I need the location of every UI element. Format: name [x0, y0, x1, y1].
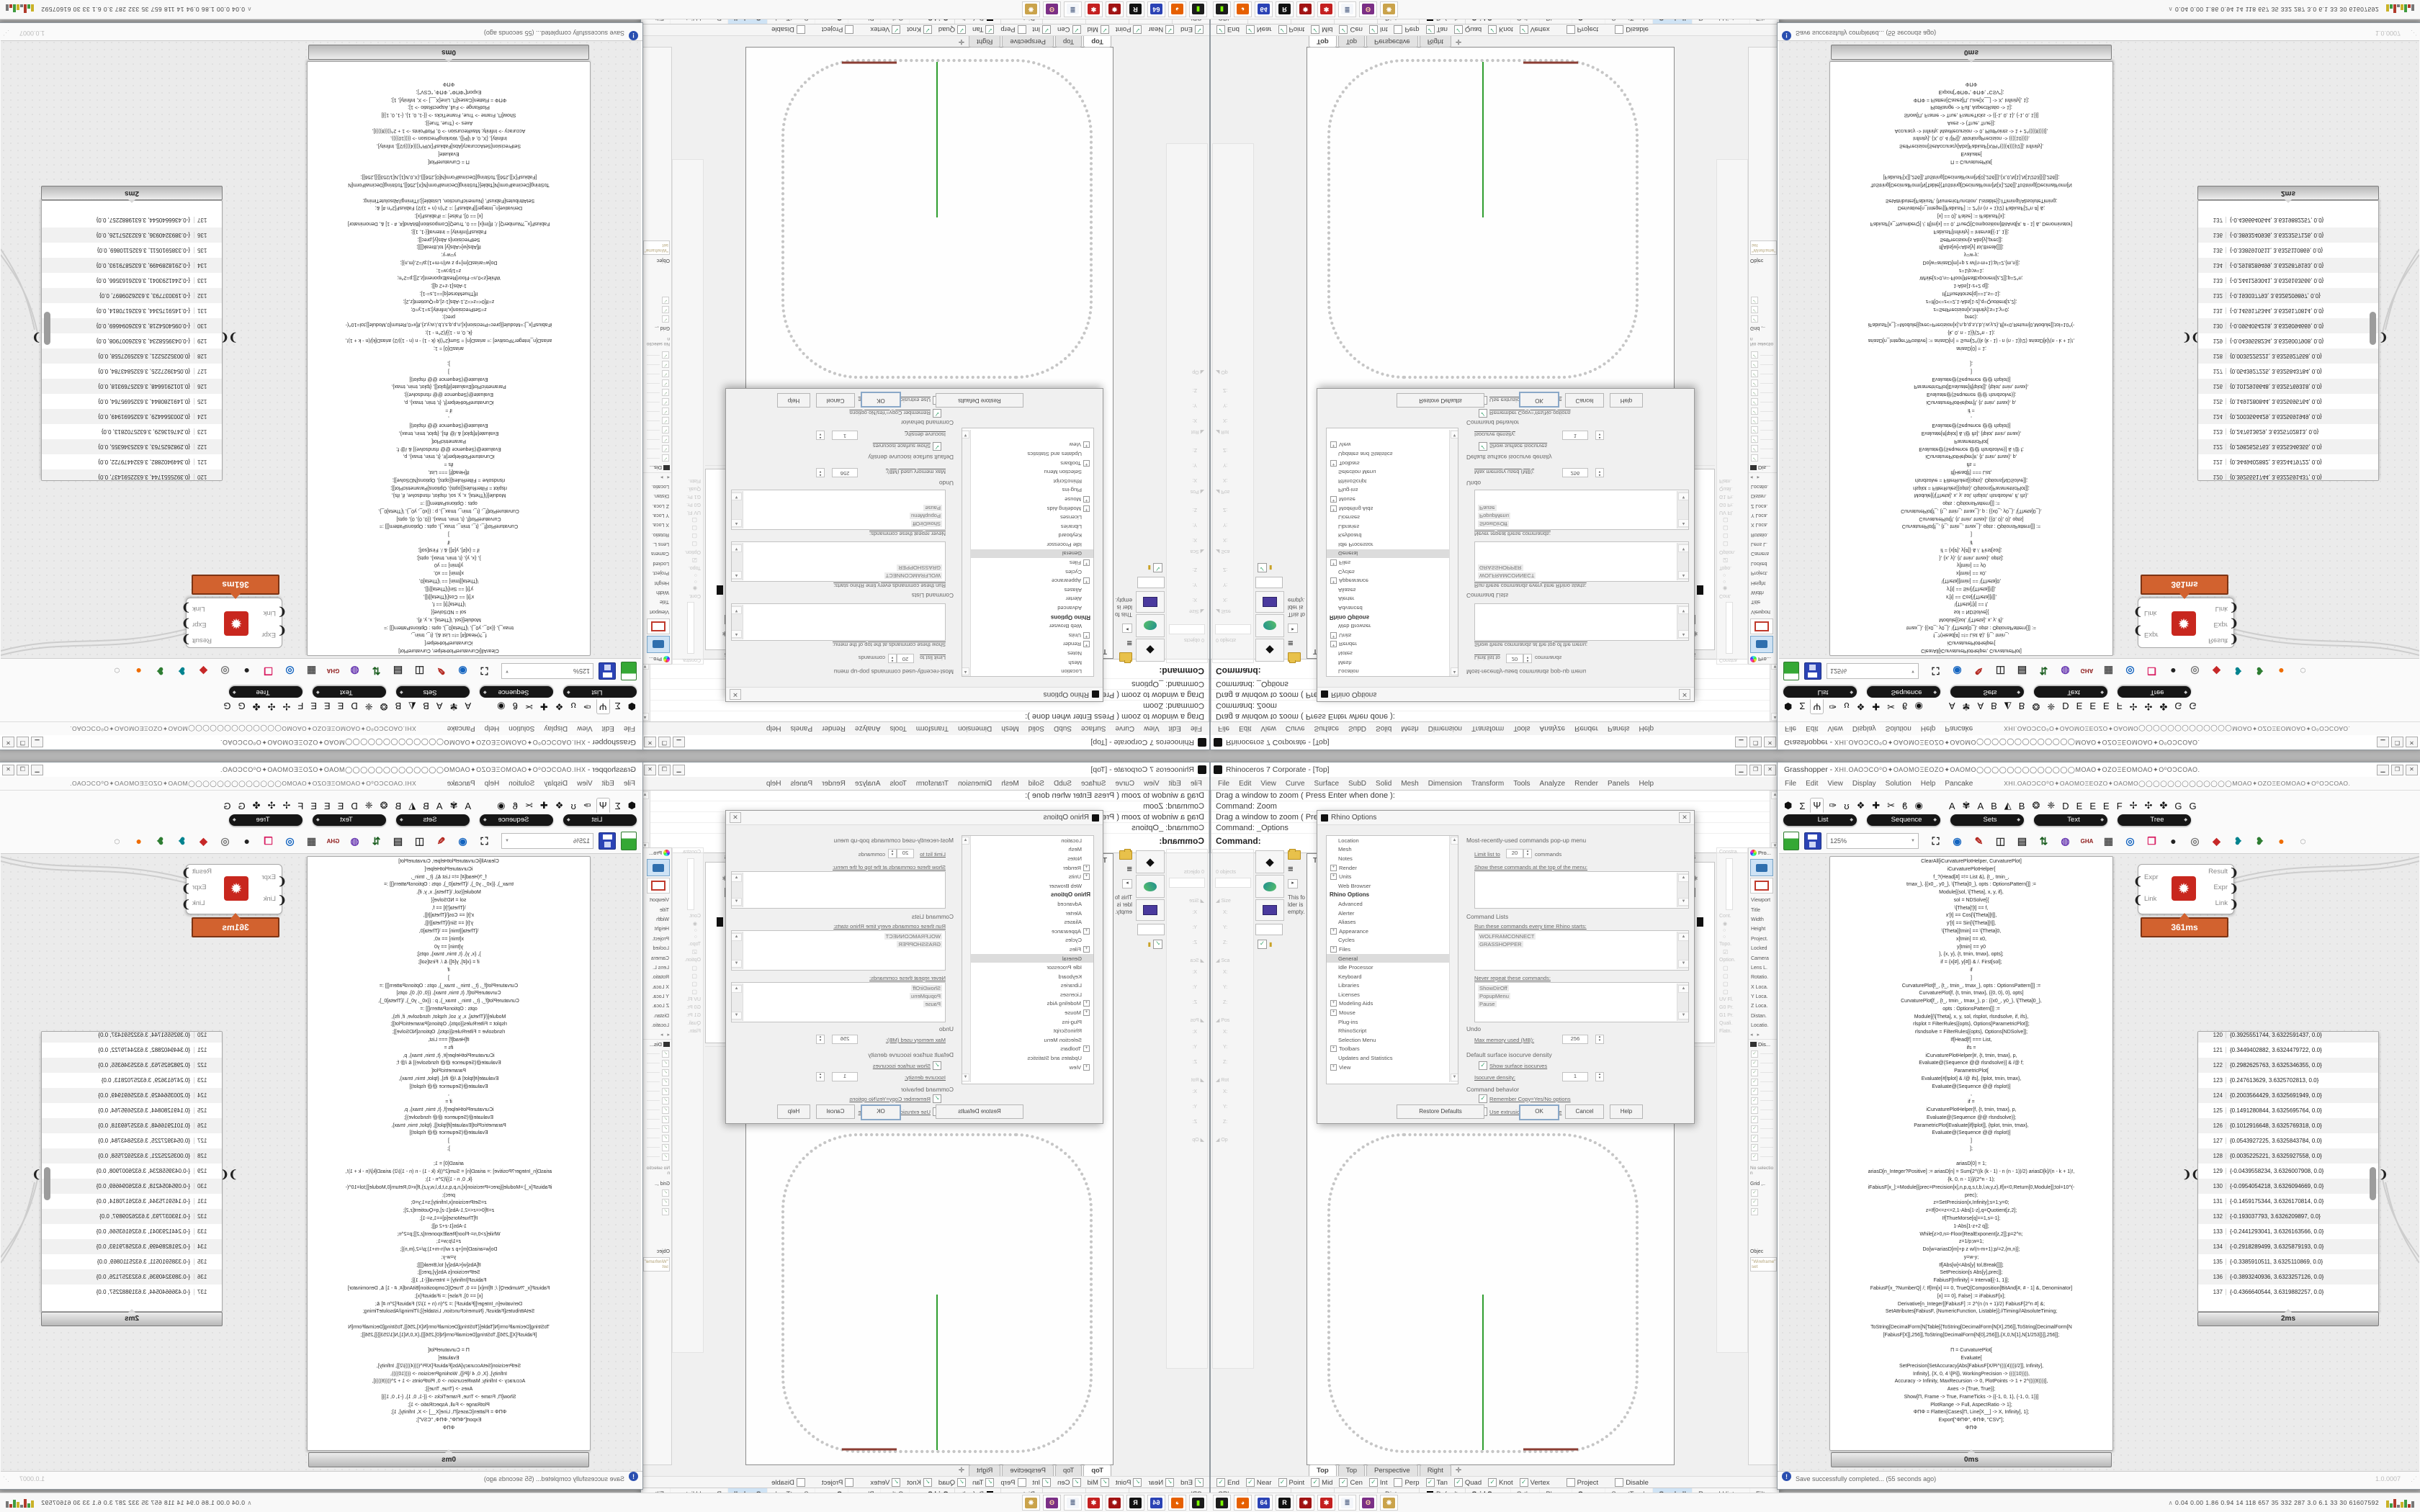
- display-check-row[interactable]: ✓: [642, 1058, 671, 1068]
- grid-check-row[interactable]: ✓: [1749, 1188, 1778, 1197]
- gh-subcategory-pills[interactable]: ListSequenceSetsTextTree: [1783, 686, 2191, 698]
- gh-toolbar-icon-6[interactable]: ◍: [347, 834, 362, 849]
- list-item[interactable]: 122{0.2982625763, 3.6325346355, 0.0}: [2198, 1058, 2378, 1073]
- menu-tools[interactable]: Tools: [889, 725, 906, 733]
- gh-toolbar-icon-10[interactable]: ❒: [2144, 664, 2159, 679]
- display-check-row[interactable]: ✓: [642, 388, 671, 397]
- button-cancel[interactable]: Cancel: [816, 393, 855, 408]
- prop-row-viewport[interactable]: Viewport: [1749, 896, 1778, 905]
- osnap-quad[interactable]: ✓Quad: [938, 1478, 966, 1487]
- never-item[interactable]: Pause: [923, 1001, 942, 1007]
- sidebar-input[interactable]: [1255, 577, 1283, 588]
- tree-item-aliases[interactable]: Aliases: [962, 917, 1093, 927]
- list-item[interactable]: 128{0.0035225221, 3.6325927558, 0.0}: [2198, 1148, 2378, 1164]
- list-item[interactable]: 134{-0.2918289499, 3.6325879193, 0.0}: [2198, 258, 2378, 273]
- gh-tab-20[interactable]: E: [322, 799, 333, 813]
- gh-tab-26[interactable]: G: [2172, 799, 2184, 813]
- gh-toolbar-icon-11[interactable]: ●: [239, 664, 254, 679]
- taskbar-console-icon[interactable]: ▮: [1213, 1495, 1231, 1511]
- gh-tab-7[interactable]: ✂: [1885, 699, 1897, 714]
- resize-grip[interactable]: ⋰: [2411, 26, 2419, 40]
- tree-item-mesh[interactable]: Mesh: [962, 845, 1093, 855]
- gh-toolbar-icon-4[interactable]: ▤: [390, 834, 405, 849]
- gh-tab-17[interactable]: ❈: [2045, 699, 2057, 714]
- output-grip2[interactable]: ❩: [181, 617, 191, 630]
- gh-toolbar-icon-7[interactable]: GHA: [2079, 834, 2094, 849]
- window-button[interactable]: ✕: [2, 737, 14, 748]
- prop-row-camera[interactable]: Camera: [642, 953, 671, 963]
- tree-item-units[interactable]: +Units: [1327, 631, 1458, 640]
- menu-analyze[interactable]: Analyze: [1540, 780, 1566, 788]
- gh-toolbar-icon-10[interactable]: ❒: [261, 664, 276, 679]
- layer-swatch[interactable]: [1697, 917, 1703, 927]
- sidebar-input[interactable]: [1137, 577, 1165, 588]
- osnap-end[interactable]: ✓End: [1216, 25, 1240, 34]
- gh-tab-25[interactable]: ✤: [251, 798, 263, 813]
- list-item[interactable]: 130{-0.0954054218, 3.6326094669, 0.0}: [2198, 318, 2378, 333]
- gh-toolbar-icon-0[interactable]: ⛶: [477, 834, 492, 849]
- gh-pill-sets[interactable]: Sets: [1950, 686, 2024, 698]
- iso-density-input[interactable]: 1: [1562, 1072, 1588, 1081]
- gh-toolbar-icon-7[interactable]: GHA: [326, 664, 341, 679]
- gh-tab-10[interactable]: A: [1947, 699, 1958, 713]
- gh-tab-2[interactable]: Ψ: [1810, 699, 1824, 714]
- tree-item-rhinoscript[interactable]: RhinoScript: [1327, 1026, 1458, 1035]
- tree-item-web-browser[interactable]: Web Browser: [1327, 621, 1458, 631]
- menu-edit[interactable]: Edit: [1239, 780, 1251, 788]
- viewport-tab-right-3[interactable]: Right: [969, 1464, 1000, 1476]
- component-output-expr[interactable]: Expr: [192, 883, 207, 891]
- prop-row-locatio[interactable]: Locatio.: [642, 1021, 671, 1030]
- prop-row-camera[interactable]: Camera: [1749, 549, 1778, 558]
- tree-item-render[interactable]: +Render: [1327, 640, 1458, 649]
- prop-row-title[interactable]: Title: [642, 905, 671, 914]
- gh-toolbar-icon-11[interactable]: ●: [2166, 664, 2181, 679]
- never-item[interactable]: ShowDirOff: [911, 985, 942, 991]
- gh-tab-4[interactable]: ʊ: [1842, 799, 1851, 813]
- taskbar-rhino-icon[interactable]: R: [1276, 1495, 1294, 1511]
- menu-dimension[interactable]: Dimension: [958, 780, 992, 788]
- run-item[interactable]: WOLFRAMCONNECT: [884, 572, 942, 579]
- run-item[interactable]: GRASSHOPPER: [897, 564, 942, 571]
- tree-item-cycles[interactable]: Cycles: [962, 567, 1093, 577]
- gh-tab-12[interactable]: A: [434, 799, 445, 813]
- gh-menu-display[interactable]: Display: [544, 780, 568, 788]
- tree-item-mesh[interactable]: Mesh: [1327, 845, 1458, 855]
- osnap-int[interactable]: ✓Int: [1033, 25, 1052, 34]
- menu-transform[interactable]: Transform: [916, 725, 949, 733]
- training-icon[interactable]: ◆: [1255, 639, 1284, 662]
- display-check-row[interactable]: ✓: [1749, 407, 1778, 416]
- gh-tab-23[interactable]: ✢: [2128, 699, 2140, 714]
- gh-tab-18[interactable]: D: [2060, 699, 2071, 713]
- window-button[interactable]: ✕: [644, 737, 656, 748]
- gh-tab-6[interactable]: ✚: [538, 798, 550, 813]
- gh-menu-help[interactable]: Help: [1921, 780, 1936, 788]
- gh-toolbar-icon-14[interactable]: ❥: [174, 664, 189, 679]
- gh-tab-13[interactable]: B: [421, 699, 431, 713]
- viewport-tab-top-1[interactable]: Top: [1055, 36, 1082, 48]
- input-grip[interactable]: ❨: [277, 624, 287, 637]
- window-button[interactable]: ❐: [2391, 765, 2403, 775]
- taskbar-palette-icon[interactable]: ❋: [1022, 1, 1040, 17]
- prop-row-title[interactable]: Title: [642, 597, 671, 606]
- prop-row-yloca[interactable]: Y Loca.: [642, 992, 671, 1002]
- prop-row-locked[interactable]: Locked: [1749, 944, 1778, 953]
- viewport-tab-top-1[interactable]: Top: [1055, 1464, 1082, 1476]
- mem-stepper[interactable]: ▴▾: [1595, 468, 1604, 477]
- limit-stepper[interactable]: ▴▾: [1523, 654, 1532, 663]
- list-item[interactable]: 133{-0.2441293041, 3.6326163566, 0.0}: [42, 1224, 222, 1239]
- gh-tab-6[interactable]: ✚: [1870, 798, 1882, 813]
- component-input-expr[interactable]: Expr: [261, 631, 276, 639]
- display-check-row[interactable]: ✓: [1749, 397, 1778, 407]
- gh-toolbar-icon-12[interactable]: ◎: [2187, 664, 2202, 679]
- list-scroll-thumb[interactable]: [2370, 1167, 2376, 1200]
- list-scroll-thumb[interactable]: [44, 1167, 50, 1200]
- list-item[interactable]: 131{-0.1459175344, 3.6326170814, 0.0}: [2198, 1194, 2378, 1209]
- gh-toolbar-icon-17[interactable]: ◌: [109, 834, 125, 849]
- gh-tab-14[interactable]: ◭: [406, 699, 418, 714]
- gh-toolbar-icon-3[interactable]: ◫: [412, 834, 427, 849]
- taskbar-floppy64-icon[interactable]: 64: [1255, 1495, 1273, 1511]
- osnap-tan[interactable]: ✓Tan: [1426, 1478, 1448, 1487]
- prop-row-lensl[interactable]: Lens L.: [642, 963, 671, 973]
- taskbar-red-gear-icon[interactable]: ✱: [1085, 1495, 1103, 1511]
- gh-menu-solution[interactable]: Solution: [1886, 725, 1912, 733]
- gh-tab-26[interactable]: G: [236, 799, 248, 813]
- osnap-int[interactable]: ✓Int: [1369, 25, 1388, 34]
- display-check-row[interactable]: ✓: [642, 407, 671, 416]
- display-check-row[interactable]: ✓: [642, 1152, 671, 1161]
- rhino-titlebar[interactable]: Rhinoceros 7 Corporate - [Top] ▁❐✕: [1211, 734, 1779, 750]
- taskbar-red-badge-icon[interactable]: ✹: [1296, 1, 1314, 17]
- tree-item-licenses[interactable]: Licenses: [1327, 990, 1458, 999]
- tree-item-rhino-options[interactable]: Rhino Options: [1327, 891, 1458, 900]
- display-check-row[interactable]: ✓: [642, 379, 671, 388]
- list-item[interactable]: 121{0.3449402882, 3.6324479722, 0.0}: [2198, 454, 2378, 469]
- prop-row-height[interactable]: Height: [642, 924, 671, 934]
- list-item[interactable]: 125{0.1491280844, 3.6325695764, 0.0}: [2198, 1103, 2378, 1118]
- tree-item-selection-menu[interactable]: Selection Menu: [962, 1035, 1093, 1045]
- gh-tab-24[interactable]: ✣: [266, 699, 278, 714]
- taskbar-firefox-icon[interactable]: ◕: [1168, 1, 1186, 17]
- gh-tab-21[interactable]: E: [308, 799, 319, 813]
- expand-icon[interactable]: +: [1083, 1000, 1090, 1007]
- prop-row-distan[interactable]: Distan.: [1749, 1012, 1778, 1021]
- rhino-titlebar[interactable]: Rhinoceros 7 Corporate - [Top] ▁❐✕: [641, 762, 1209, 778]
- expand-icon[interactable]: +: [1083, 946, 1090, 953]
- limit-stepper[interactable]: ▴▾: [888, 849, 897, 858]
- tree-item-plug-ins[interactable]: Plug-ins: [1327, 486, 1458, 495]
- hamburger-icon[interactable]: ≡: [1113, 639, 1132, 648]
- tree-item-aliases[interactable]: Aliases: [1327, 917, 1458, 927]
- gh-pill-list[interactable]: List: [1783, 686, 1857, 698]
- gh-pill-sequence[interactable]: Sequence: [1867, 686, 1940, 698]
- gh-tab-2[interactable]: Ψ: [1810, 798, 1824, 813]
- camera-button[interactable]: [647, 859, 670, 876]
- display-check-row[interactable]: ✓: [1749, 435, 1778, 444]
- gh-tab-11[interactable]: ✾: [1960, 699, 1973, 714]
- code-panel[interactable]: ClearAll[iCurvaturePlotHelper, Curvature…: [1829, 856, 2113, 1451]
- open-file-icon[interactable]: [1783, 832, 1799, 850]
- input-grip2[interactable]: ❨: [2133, 606, 2143, 618]
- menu-surface[interactable]: Surface: [1081, 725, 1106, 733]
- taskbar-notepad-icon[interactable]: ≣: [1338, 1, 1356, 17]
- gh-tab-0[interactable]: ⬢: [1782, 699, 1794, 714]
- taskbar-red-gear-icon[interactable]: ✱: [1317, 1, 1335, 17]
- expand-box[interactable]: ▸: [1122, 879, 1132, 888]
- gh-tab-24[interactable]: ✣: [2143, 798, 2155, 813]
- gh-pill-tree[interactable]: Tree: [229, 814, 302, 826]
- viewport-tabs[interactable]: TopTopPerspectiveRight✛: [956, 1464, 1111, 1476]
- expand-icon[interactable]: +: [1330, 946, 1337, 953]
- display-check-row[interactable]: ✓: [642, 1077, 671, 1086]
- blob-icon[interactable]: [1136, 614, 1165, 637]
- expand-icon[interactable]: +: [1330, 873, 1337, 880]
- osnap-vertex[interactable]: ✓Vertex: [870, 1478, 900, 1487]
- tree-item-cycles[interactable]: Cycles: [1327, 567, 1458, 577]
- resize-grip[interactable]: ⋰: [1, 26, 9, 40]
- options-tree[interactable]: LocationMeshNotes+Render+UnitsWeb Browse…: [1326, 428, 1458, 677]
- prop-row-title[interactable]: Title: [1749, 905, 1778, 914]
- expand-icon[interactable]: +: [1330, 928, 1337, 935]
- expand-icon[interactable]: +: [1330, 496, 1337, 503]
- gh-toolbar-icon-13[interactable]: ◆: [196, 664, 211, 679]
- options-tree[interactable]: LocationMeshNotes+Render+UnitsWeb Browse…: [1326, 835, 1458, 1084]
- window-button[interactable]: ▁: [1735, 765, 1747, 775]
- gh-tab-8[interactable]: ϐ: [510, 799, 519, 813]
- gh-toolbar-icon-4[interactable]: ▤: [2015, 664, 2030, 679]
- tree-item-updates-and-statistics[interactable]: Updates and Statistics: [1327, 1053, 1458, 1063]
- iso-density-stepper[interactable]: ▴▾: [816, 431, 825, 440]
- osnap-knot[interactable]: ✓Knot: [1488, 25, 1513, 34]
- gh-subcategory-pills[interactable]: ListSequenceSetsTextTree: [1783, 814, 2191, 826]
- new-viewport-icon[interactable]: ✛: [1453, 36, 1464, 47]
- target-button[interactable]: [647, 878, 670, 894]
- menu-transform[interactable]: Transform: [1471, 780, 1504, 788]
- gh-toolbar-icon-14[interactable]: ❥: [2231, 664, 2246, 679]
- hright-icon[interactable]: ▸: [660, 474, 663, 480]
- gh-toolbar-icon-13[interactable]: ◆: [2209, 834, 2224, 849]
- gh-toolbar-icon-8[interactable]: ▦: [304, 664, 319, 679]
- taskbar-notepad-icon[interactable]: ≣: [1064, 1495, 1082, 1511]
- gh-tab-4[interactable]: ʊ: [568, 699, 578, 713]
- gh-tab-2[interactable]: Ψ: [596, 699, 610, 714]
- gh-tab-15[interactable]: B: [2017, 699, 2027, 713]
- list-item[interactable]: 130{-0.0954054218, 3.6326094669, 0.0}: [2198, 1179, 2378, 1194]
- tree-item-appearance[interactable]: +Appearance: [962, 927, 1093, 936]
- osnap-point[interactable]: ✓Point: [1116, 25, 1142, 34]
- tree-item-keyboard[interactable]: Keyboard: [1327, 972, 1458, 981]
- taskbar-console-icon[interactable]: ▮: [1213, 1, 1231, 17]
- viewport-tab-perspective-2[interactable]: Perspective: [1002, 1464, 1054, 1476]
- tree-item-cycles[interactable]: Cycles: [1327, 936, 1458, 945]
- gh-toolbar-icon-9[interactable]: ◎: [2123, 664, 2138, 679]
- tree-item-alerter[interactable]: Alerter: [1327, 595, 1458, 604]
- gh-toolbar-icon-5[interactable]: ⇅: [2036, 834, 2051, 849]
- list-item[interactable]: 133{-0.2441293041, 3.6326163566, 0.0}: [42, 273, 222, 288]
- gh-subcategory-pills[interactable]: ListSequenceSetsTextTree: [229, 686, 637, 698]
- osnap-cen[interactable]: ✓Cen: [1339, 1478, 1362, 1487]
- gh-menu-help[interactable]: Help: [485, 725, 500, 733]
- hamburger-icon[interactable]: ≡: [1288, 864, 1307, 873]
- gh-toolbar-icon-6[interactable]: ◍: [2058, 664, 2073, 679]
- run-item[interactable]: GRASSHOPPER: [1478, 941, 1523, 948]
- viewport-tab-right-3[interactable]: Right: [1420, 1464, 1451, 1476]
- tree-item-rhino-options[interactable]: Rhino Options: [962, 613, 1093, 622]
- component-output-expr[interactable]: Expr: [2213, 883, 2228, 891]
- mathematica-spikey-icon[interactable]: ✹: [224, 876, 248, 901]
- output-grip2[interactable]: ❩: [2229, 882, 2238, 895]
- gh-tab-20[interactable]: E: [2087, 799, 2098, 813]
- prop-row-distan[interactable]: Distan.: [642, 491, 671, 500]
- gh-tab-21[interactable]: E: [2101, 799, 2112, 813]
- grid-check-row[interactable]: ✓: [642, 315, 671, 324]
- taskbar-purple-app-icon[interactable]: ʘ: [1359, 1495, 1377, 1511]
- tree-item-general[interactable]: General: [1327, 954, 1458, 963]
- gh-tab-26[interactable]: G: [236, 699, 248, 713]
- menu-help[interactable]: Help: [766, 780, 781, 788]
- gh-tab-10[interactable]: A: [462, 799, 473, 813]
- gh-pill-sets[interactable]: Sets: [396, 686, 470, 698]
- list-item[interactable]: 133{-0.2441293041, 3.6326163566, 0.0}: [2198, 1224, 2378, 1239]
- menu-render[interactable]: Render: [1574, 780, 1598, 788]
- display-check-row[interactable]: ✓: [642, 416, 671, 426]
- hright-icon[interactable]: ▸: [1757, 474, 1760, 480]
- iso-density-input[interactable]: 1: [832, 431, 858, 440]
- wireframe-set-box[interactable]: "Wireframe" set: [1750, 240, 1777, 255]
- osnap-cen[interactable]: ✓Cen: [1057, 25, 1080, 34]
- list-panel[interactable]: 120{0.3925551744, 3.6322591437, 0.0}121{…: [2197, 1031, 2379, 1312]
- options-dialog-titlebar[interactable]: Rhino Options ✕: [726, 687, 1103, 701]
- menu-view[interactable]: View: [1144, 725, 1160, 733]
- list-item[interactable]: 137{-0.4366640544, 3.6319882257, 0.0}: [42, 1284, 222, 1300]
- list-item[interactable]: 122{0.2982625763, 3.6325346355, 0.0}: [2198, 439, 2378, 454]
- prop-row-project[interactable]: Project.: [1749, 568, 1778, 577]
- grid-check-row[interactable]: ✓: [642, 296, 671, 305]
- gh-tab-9[interactable]: ◉: [1913, 798, 1925, 813]
- gh-toolbar-icon-9[interactable]: ◎: [282, 834, 297, 849]
- taskbar-notepad-icon[interactable]: ≣: [1064, 1, 1082, 17]
- gh-menu-file[interactable]: File: [1785, 725, 1796, 733]
- display-check-row[interactable]: ✓: [1749, 1124, 1778, 1133]
- gh-canvas[interactable]: ClearAll[iCurvaturePlotHelper, Curvature…: [1779, 853, 2419, 1472]
- osnap-quad[interactable]: ✓Quad: [938, 25, 966, 34]
- gh-pill-text[interactable]: Text: [313, 686, 386, 698]
- window-button[interactable]: ❐: [1749, 765, 1762, 775]
- hamburger-icon[interactable]: ≡: [1288, 639, 1307, 648]
- display-mode-icon[interactable]: [1255, 591, 1284, 613]
- tree-item-plug-ins[interactable]: Plug-ins: [962, 486, 1093, 495]
- tree-item-notes[interactable]: Notes: [1327, 854, 1458, 863]
- osnap-end[interactable]: ✓End: [1180, 25, 1204, 34]
- list-item[interactable]: 124{0.2003564429, 3.6325691949, 0.0}: [42, 1088, 222, 1103]
- list-item[interactable]: 124{0.2003564429, 3.6325691949, 0.0}: [42, 409, 222, 424]
- osnap-near[interactable]: ✓Near: [1246, 1478, 1272, 1487]
- run-listbox[interactable]: WOLFRAMCONNECTGRASSHOPPER▲▼: [1474, 930, 1689, 971]
- gh-tab-2[interactable]: Ψ: [596, 798, 610, 813]
- component-input-link[interactable]: Link: [2144, 895, 2156, 903]
- list-item[interactable]: 125{0.1491280844, 3.6325695764, 0.0}: [42, 394, 222, 409]
- save-file-icon[interactable]: [1804, 662, 1821, 680]
- iso-density-stepper[interactable]: ▴▾: [816, 1072, 825, 1081]
- osnap-mid[interactable]: ✓Mid: [1311, 1478, 1332, 1487]
- menu-edit[interactable]: Edit: [1169, 725, 1181, 733]
- mem-input[interactable]: 256: [832, 468, 858, 477]
- mru-listbox[interactable]: ▲▼: [731, 871, 946, 909]
- osnap-cen[interactable]: ✓Cen: [1057, 1478, 1080, 1487]
- menu-render[interactable]: Render: [1574, 725, 1598, 733]
- never-listbox[interactable]: ShowDirOffPopupMenuPause▲▼: [731, 490, 946, 530]
- gh-tab-22[interactable]: F: [2115, 799, 2125, 813]
- gh-menu-view[interactable]: View: [1827, 725, 1843, 733]
- osnap-mid[interactable]: ✓Mid: [1311, 25, 1332, 34]
- new-viewport-icon[interactable]: ✛: [956, 1465, 967, 1476]
- never-item[interactable]: ShowDirOff: [1478, 521, 1509, 527]
- gh-toolbar-icon-13[interactable]: ◆: [2209, 664, 2224, 679]
- dialog-close-icon[interactable]: ✕: [730, 689, 741, 700]
- sidebar-input[interactable]: [1137, 924, 1165, 935]
- gh-toolbar-icon-10[interactable]: ❒: [261, 834, 276, 849]
- tree-item-idle-processor[interactable]: Idle Processor: [1327, 540, 1458, 549]
- gh-toolbar-icon-17[interactable]: ◌: [2295, 664, 2311, 679]
- prop-row-camera[interactable]: Camera: [1749, 953, 1778, 963]
- prop-row-locked[interactable]: Locked: [642, 944, 671, 953]
- open-file-icon[interactable]: [621, 832, 637, 850]
- tree-item-files[interactable]: +Files: [1327, 945, 1458, 954]
- gh-tab-14[interactable]: ◭: [2002, 699, 2014, 714]
- tree-item-units[interactable]: +Units: [962, 872, 1093, 881]
- sidebar-check[interactable]: ✓▮: [1134, 563, 1165, 572]
- expand-icon[interactable]: +: [1330, 1045, 1337, 1052]
- prop-row-lensl[interactable]: Lens L.: [642, 539, 671, 549]
- taskbar-console-icon[interactable]: ▮: [1189, 1, 1207, 17]
- tree-item-advanced[interactable]: Advanced: [962, 899, 1093, 909]
- menu-solid[interactable]: Solid: [1376, 780, 1391, 788]
- window-button[interactable]: ✕: [2406, 765, 2418, 775]
- display-check-row[interactable]: ✓: [1749, 416, 1778, 426]
- gh-tab-27[interactable]: G: [221, 699, 233, 713]
- gh-tab-7[interactable]: ✂: [1885, 798, 1897, 813]
- output-grip[interactable]: ❩: [2229, 866, 2238, 879]
- prop-row-zloca[interactable]: Z Loca.: [642, 1002, 671, 1011]
- button-help[interactable]: Help: [777, 1104, 810, 1119]
- iso-check[interactable]: ✓Show surface isocurves: [873, 1061, 941, 1070]
- gh-toolbar-icon-8[interactable]: ▦: [2101, 664, 2116, 679]
- gh-toolbar-icon-11[interactable]: ●: [2166, 834, 2181, 849]
- expand-icon[interactable]: +: [1330, 865, 1337, 871]
- display-check-row[interactable]: ✓: [642, 454, 671, 463]
- prop-row-camera[interactable]: Camera: [642, 549, 671, 558]
- gh-toolbar-icon-4[interactable]: ▤: [390, 664, 405, 679]
- component-input-expr[interactable]: Expr: [2144, 631, 2159, 639]
- gh-tab-1[interactable]: Σ: [613, 699, 623, 713]
- display-check-row[interactable]: ✓: [1749, 1105, 1778, 1115]
- gh-menu-pancake[interactable]: Pancake: [1945, 725, 1973, 733]
- expand-icon[interactable]: +: [1083, 928, 1090, 935]
- list-item[interactable]: 127{0.0543927225, 3.6325843784, 0.0}: [42, 364, 222, 379]
- gh-category-tabs[interactable]: ⬢ΣΨ✑ʊ❖✚✂ϐ◉A✾AB◭B❂❈DEEEF✢✣✤GG: [221, 791, 638, 813]
- component-output-link[interactable]: Link: [192, 899, 205, 907]
- prop-row-rotatio[interactable]: Rotatio.: [1749, 973, 1778, 982]
- mru-listbox[interactable]: ▲▼: [731, 603, 946, 641]
- display-check-row[interactable]: ✓: [642, 1133, 671, 1143]
- osnap-tan[interactable]: ✓Tan: [972, 1478, 994, 1487]
- taskbar-firefox-icon[interactable]: ◕: [1234, 1, 1252, 17]
- menu-file[interactable]: File: [1191, 725, 1202, 733]
- display-check-row[interactable]: ✓: [1749, 388, 1778, 397]
